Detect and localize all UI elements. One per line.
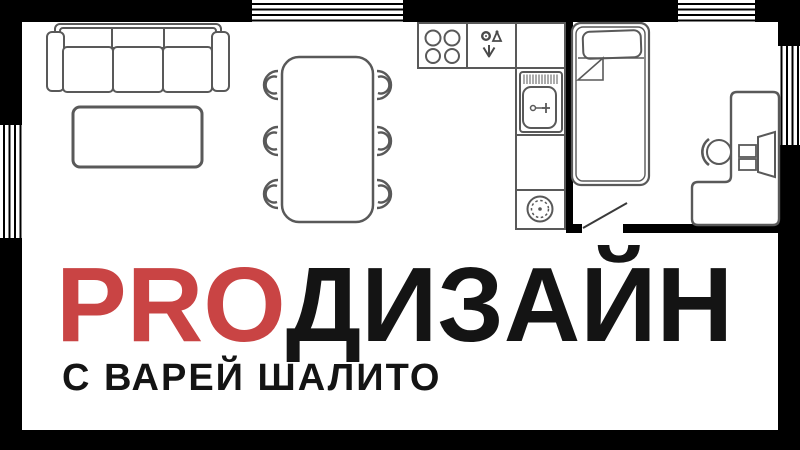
dining-table	[282, 57, 373, 222]
washing-machine-icon	[528, 197, 553, 222]
window-right	[782, 46, 799, 145]
logo-title-accent: PRO	[56, 246, 286, 364]
logo-subtitle: С ВАРЕЙ ШАЛИТО	[62, 357, 441, 400]
sink-icon	[520, 72, 562, 132]
window-top-right	[678, 4, 755, 21]
door	[583, 203, 627, 228]
logo-title: PROДИЗАЙН	[56, 252, 733, 358]
window-top-left	[252, 4, 403, 21]
logo-title-rest: ДИЗАЙН	[286, 246, 733, 364]
window-left	[4, 125, 21, 238]
coffee-table	[73, 107, 202, 167]
poster: PROДИЗАЙН С ВАРЕЙ ШАЛИТО	[0, 0, 800, 450]
sofa	[47, 24, 229, 92]
bed	[572, 23, 649, 185]
desk-chair	[702, 139, 731, 165]
pillow	[583, 30, 642, 59]
